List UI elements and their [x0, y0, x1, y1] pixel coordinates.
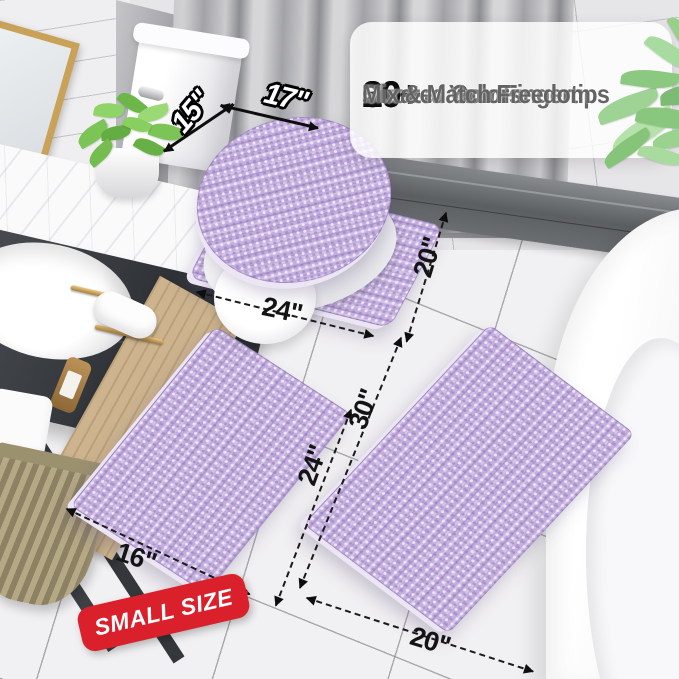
feature-label: Mix & Match Freedom [362, 79, 590, 110]
bathtub-inner [586, 338, 679, 679]
bathroom-product-photo: 15" 17" 24" 20" 16" 24" 30" 20" ✓ 20+ Si… [0, 0, 679, 679]
